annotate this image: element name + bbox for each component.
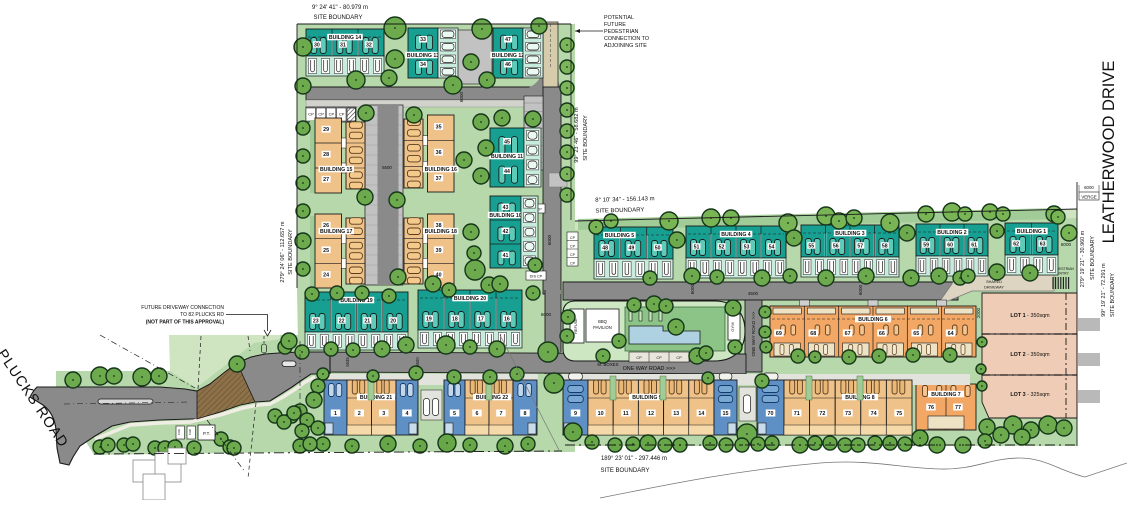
svg-text:11: 11 <box>623 411 629 417</box>
svg-text:BUILDING 9: BUILDING 9 <box>632 395 662 401</box>
svg-text:4500: 4500 <box>748 291 759 296</box>
svg-text:ONE WAY ROAD >>>: ONE WAY ROAD >>> <box>623 366 676 372</box>
svg-text:FUTURE DRIVEWAY CONNECTION: FUTURE DRIVEWAY CONNECTION <box>141 305 224 311</box>
svg-text:32: 32 <box>366 43 372 49</box>
svg-text:CP: CP <box>656 356 662 360</box>
svg-text:63: 63 <box>1040 242 1046 248</box>
svg-text:BBQ: BBQ <box>598 319 608 324</box>
svg-text:52: 52 <box>719 245 725 251</box>
svg-text:DIS CP: DIS CP <box>530 275 543 279</box>
svg-text:BUILDING 19: BUILDING 19 <box>340 298 372 304</box>
svg-text:6535: 6535 <box>345 357 350 367</box>
svg-text:189° 23' 01" - 297.446 m: 189° 23' 01" - 297.446 m <box>601 456 667 462</box>
svg-text:CP: CP <box>318 112 324 117</box>
svg-text:CP: CP <box>570 236 576 240</box>
svg-text:6: 6 <box>476 411 479 417</box>
svg-text:LOT 3 - 325sqm: LOT 3 - 325sqm <box>1010 392 1050 398</box>
svg-text:ADJOINING SITE: ADJOINING SITE <box>604 43 647 49</box>
svg-text:BUILDING 16: BUILDING 16 <box>425 167 457 173</box>
svg-text:LEATHERWOOD DRIVE: LEATHERWOOD DRIVE <box>1100 61 1118 244</box>
svg-text:3: 3 <box>382 411 385 417</box>
svg-text:6000: 6000 <box>858 284 863 295</box>
svg-text:60: 60 <box>947 243 953 249</box>
svg-text:LOT 1 - 350sqm: LOT 1 - 350sqm <box>1010 313 1050 319</box>
svg-text:76: 76 <box>928 405 934 411</box>
svg-text:73: 73 <box>845 411 851 417</box>
svg-text:BUILDING 4: BUILDING 4 <box>721 232 751 238</box>
svg-text:34: 34 <box>420 62 426 68</box>
svg-text:CP: CP <box>339 112 345 117</box>
svg-text:22: 22 <box>339 319 345 325</box>
svg-text:BUILDING 6: BUILDING 6 <box>858 317 888 323</box>
svg-text:FUTURE: FUTURE <box>604 22 626 28</box>
svg-text:SITE BOUNDARY: SITE BOUNDARY <box>583 115 589 161</box>
svg-text:8: 8 <box>524 411 527 417</box>
svg-text:PEDESTRIAN: PEDESTRIAN <box>604 29 639 35</box>
svg-text:48: 48 <box>602 246 608 252</box>
svg-text:19: 19 <box>426 317 432 323</box>
svg-text:GYM: GYM <box>730 322 735 331</box>
svg-text:CP: CP <box>570 253 576 257</box>
svg-text:BUILDING 20: BUILDING 20 <box>454 296 486 302</box>
svg-text:44: 44 <box>504 169 510 175</box>
svg-text:(NOT PART OF THIS APPROVAL): (NOT PART OF THIS APPROVAL) <box>146 320 225 326</box>
svg-text:BUILDING 17: BUILDING 17 <box>320 229 352 235</box>
svg-text:50: 50 <box>655 246 661 252</box>
svg-text:6500: 6500 <box>415 357 420 367</box>
svg-text:39: 39 <box>436 248 442 254</box>
svg-text:5: 5 <box>453 411 456 417</box>
svg-text:TO 82 PLUCKS RD: TO 82 PLUCKS RD <box>180 312 224 318</box>
svg-text:43: 43 <box>503 205 509 211</box>
svg-text:VERGE: VERGE <box>1081 194 1096 199</box>
svg-text:BUILDING 13: BUILDING 13 <box>407 53 439 59</box>
svg-text:62: 62 <box>1013 242 1019 248</box>
svg-text:31: 31 <box>340 43 346 49</box>
svg-text:28: 28 <box>323 152 329 158</box>
svg-text:SITE BOUNDARY: SITE BOUNDARY <box>288 229 294 275</box>
svg-text:72: 72 <box>819 411 825 417</box>
svg-text:6000: 6000 <box>547 234 552 245</box>
svg-text:77: 77 <box>955 405 961 411</box>
svg-text:SITE BOUNDARY: SITE BOUNDARY <box>1110 273 1116 317</box>
svg-text:CP: CP <box>329 112 335 117</box>
svg-text:SITE BOUNDARY: SITE BOUNDARY <box>595 207 644 214</box>
svg-text:CP: CP <box>570 245 576 249</box>
svg-text:279° 19' 21" - 30.960 m: 279° 19' 21" - 30.960 m <box>1080 230 1086 287</box>
svg-text:1: 1 <box>334 411 337 417</box>
svg-text:74: 74 <box>871 411 877 417</box>
svg-text:CP: CP <box>308 112 314 117</box>
svg-text:279° 24' 06" - 112.657 m: 279° 24' 06" - 112.657 m <box>280 221 286 283</box>
svg-text:13: 13 <box>673 411 679 417</box>
svg-text:71: 71 <box>794 411 800 417</box>
svg-text:7: 7 <box>500 411 503 417</box>
svg-text:BUILDING 11: BUILDING 11 <box>491 154 523 160</box>
svg-text:65: 65 <box>913 331 919 337</box>
svg-text:4: 4 <box>406 411 409 417</box>
svg-text:DRIVEWAY: DRIVEWAY <box>984 286 1004 290</box>
svg-text:M. BOXES: M. BOXES <box>597 362 618 367</box>
svg-text:61: 61 <box>971 243 977 249</box>
svg-text:BUILDING 15: BUILDING 15 <box>320 167 352 173</box>
svg-text:51: 51 <box>694 245 700 251</box>
svg-text:ENTRY: ENTRY <box>1057 272 1069 276</box>
svg-text:66: 66 <box>879 331 885 337</box>
svg-text:36: 36 <box>436 150 442 156</box>
svg-text:99° 23' 46" - 58.682 m: 99° 23' 46" - 58.682 m <box>574 107 580 163</box>
svg-text:CP: CP <box>636 356 642 360</box>
svg-text:45: 45 <box>504 139 510 145</box>
svg-text:29: 29 <box>323 127 329 133</box>
svg-text:CP: CP <box>570 262 576 266</box>
svg-text:59: 59 <box>923 243 929 249</box>
svg-text:SHARED: SHARED <box>986 280 1002 284</box>
svg-text:35: 35 <box>436 125 442 131</box>
svg-text:99° 19' 21" - 72.291 m: 99° 19' 21" - 72.291 m <box>1101 263 1107 317</box>
svg-text:27: 27 <box>323 177 329 183</box>
svg-text:75: 75 <box>896 411 902 417</box>
svg-text:CAR: CAR <box>188 429 192 435</box>
svg-text:CP: CP <box>676 356 682 360</box>
svg-text:BUILDING 1: BUILDING 1 <box>1017 229 1047 235</box>
svg-text:BUILDING 14: BUILDING 14 <box>329 35 361 41</box>
svg-text:6000: 6000 <box>1061 242 1072 247</box>
svg-text:2: 2 <box>358 411 361 417</box>
svg-text:BUILDING 18: BUILDING 18 <box>425 229 457 235</box>
svg-text:CAR: CAR <box>177 429 181 435</box>
svg-text:6000: 6000 <box>459 91 464 102</box>
svg-text:58: 58 <box>882 244 888 250</box>
svg-text:10: 10 <box>598 411 604 417</box>
svg-text:5500: 5500 <box>382 165 392 170</box>
svg-text:LOT 2 - 350sqm: LOT 2 - 350sqm <box>1010 352 1050 358</box>
svg-text:POTENTIAL: POTENTIAL <box>604 15 634 21</box>
svg-text:BUILDING 10: BUILDING 10 <box>489 213 521 219</box>
svg-text:BUILDING 3: BUILDING 3 <box>835 231 865 237</box>
svg-text:SITE BOUNDARY: SITE BOUNDARY <box>1090 236 1096 280</box>
svg-text:70: 70 <box>768 411 774 417</box>
svg-text:15: 15 <box>723 411 729 417</box>
svg-text:64: 64 <box>948 331 954 337</box>
svg-text:BUILDING 2: BUILDING 2 <box>937 230 967 236</box>
svg-text:53: 53 <box>744 245 750 251</box>
svg-text:SITE BOUNDARY: SITE BOUNDARY <box>601 468 650 474</box>
svg-text:SITE BOUNDARY: SITE BOUNDARY <box>314 15 363 21</box>
svg-text:12: 12 <box>648 411 654 417</box>
svg-text:30: 30 <box>314 43 320 49</box>
svg-text:55: 55 <box>808 244 814 250</box>
svg-text:24: 24 <box>323 272 329 278</box>
svg-text:37: 37 <box>436 176 442 182</box>
svg-text:21: 21 <box>364 319 370 325</box>
svg-text:46: 46 <box>505 62 511 68</box>
svg-text:BUILDING 5: BUILDING 5 <box>605 233 635 239</box>
svg-text:47: 47 <box>505 37 511 43</box>
svg-text:42: 42 <box>503 229 509 235</box>
svg-text:20: 20 <box>390 319 396 325</box>
svg-text:9: 9 <box>574 411 577 417</box>
svg-text:33: 33 <box>420 37 426 43</box>
svg-text:49: 49 <box>629 246 635 252</box>
svg-text:BUILDING 21: BUILDING 21 <box>360 395 392 401</box>
svg-text:25: 25 <box>323 248 329 254</box>
svg-text:18: 18 <box>452 317 458 323</box>
svg-text:41: 41 <box>503 253 509 259</box>
svg-text:P.T.: P.T. <box>203 431 210 436</box>
svg-text:BUILDING 7: BUILDING 7 <box>931 392 961 398</box>
svg-text:ONE WAY ROAD >>>: ONE WAY ROAD >>> <box>751 311 756 356</box>
svg-text:16: 16 <box>504 317 510 323</box>
svg-text:67: 67 <box>845 331 851 337</box>
svg-text:17: 17 <box>478 317 484 323</box>
svg-text:54: 54 <box>769 245 775 251</box>
svg-text:CONNECTION TO: CONNECTION TO <box>604 36 649 42</box>
svg-text:6000: 6000 <box>690 283 695 294</box>
svg-text:68: 68 <box>810 331 816 337</box>
svg-text:6000: 6000 <box>541 312 552 317</box>
svg-text:6000: 6000 <box>1084 185 1094 190</box>
svg-text:14: 14 <box>698 411 704 417</box>
svg-text:PAVILION: PAVILION <box>593 325 612 330</box>
svg-text:23: 23 <box>313 319 319 325</box>
svg-text:57: 57 <box>857 244 863 250</box>
svg-text:2000: 2000 <box>976 307 981 318</box>
svg-text:9° 24' 41" - 80.979 m: 9° 24' 41" - 80.979 m <box>312 5 368 11</box>
svg-text:56: 56 <box>833 244 839 250</box>
svg-text:BUILDING 12: BUILDING 12 <box>492 53 524 59</box>
svg-text:69: 69 <box>776 331 782 337</box>
